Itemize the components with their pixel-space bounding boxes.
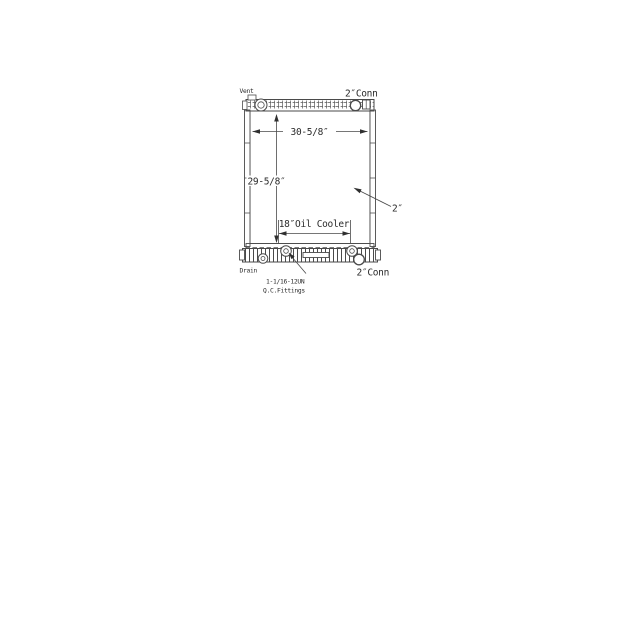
fitting-spec-line1: 1-1/16-12UN xyxy=(266,279,305,286)
top-conn-port xyxy=(350,100,360,110)
top-conn-label: 2″Conn xyxy=(345,89,378,100)
radiator-diagram: 30-5/8″ 29-5/8″ 18″Oil Cooler 2″ 1- xyxy=(0,0,620,620)
top-tank-left-cap xyxy=(243,101,248,110)
bottom-tank xyxy=(240,244,381,265)
vent-fitting xyxy=(248,95,256,100)
bottom-conn-label: 2″Conn xyxy=(357,268,390,279)
oil-cooler-dimension: 18″Oil Cooler xyxy=(279,219,351,243)
depth-label: 2″ xyxy=(392,204,403,215)
width-dimension-label: 30-5/8″ xyxy=(291,127,329,138)
fitting-spec-line2: Q.C.Fittings xyxy=(263,288,305,295)
drain-port xyxy=(258,254,268,264)
width-dimension: 30-5/8″ xyxy=(253,127,368,138)
dim-arrow-right xyxy=(360,129,368,133)
dim-arrow-left xyxy=(253,129,261,133)
drawing-canvas: 30-5/8″ 29-5/8″ 18″Oil Cooler 2″ 1- xyxy=(0,0,620,620)
bottom-tank-right-cap xyxy=(376,250,381,260)
bottom-tank-slot xyxy=(303,253,329,258)
depth-leader: 2″ xyxy=(354,188,403,215)
dim-arrow-up xyxy=(274,114,279,122)
drain-label: Drain xyxy=(240,268,258,275)
dim-arrow-left xyxy=(279,231,287,235)
oil-cooler-label: 18″Oil Cooler xyxy=(279,219,350,230)
height-dimension-label: 29-5/8″ xyxy=(248,177,286,188)
dim-arrow-right xyxy=(343,231,351,235)
vent-label: Vent xyxy=(240,88,254,95)
bottom-conn-port xyxy=(354,254,365,265)
radiator-cap xyxy=(255,99,267,111)
leader-arrow xyxy=(354,188,362,194)
bottom-tank-left-cap xyxy=(240,250,245,260)
